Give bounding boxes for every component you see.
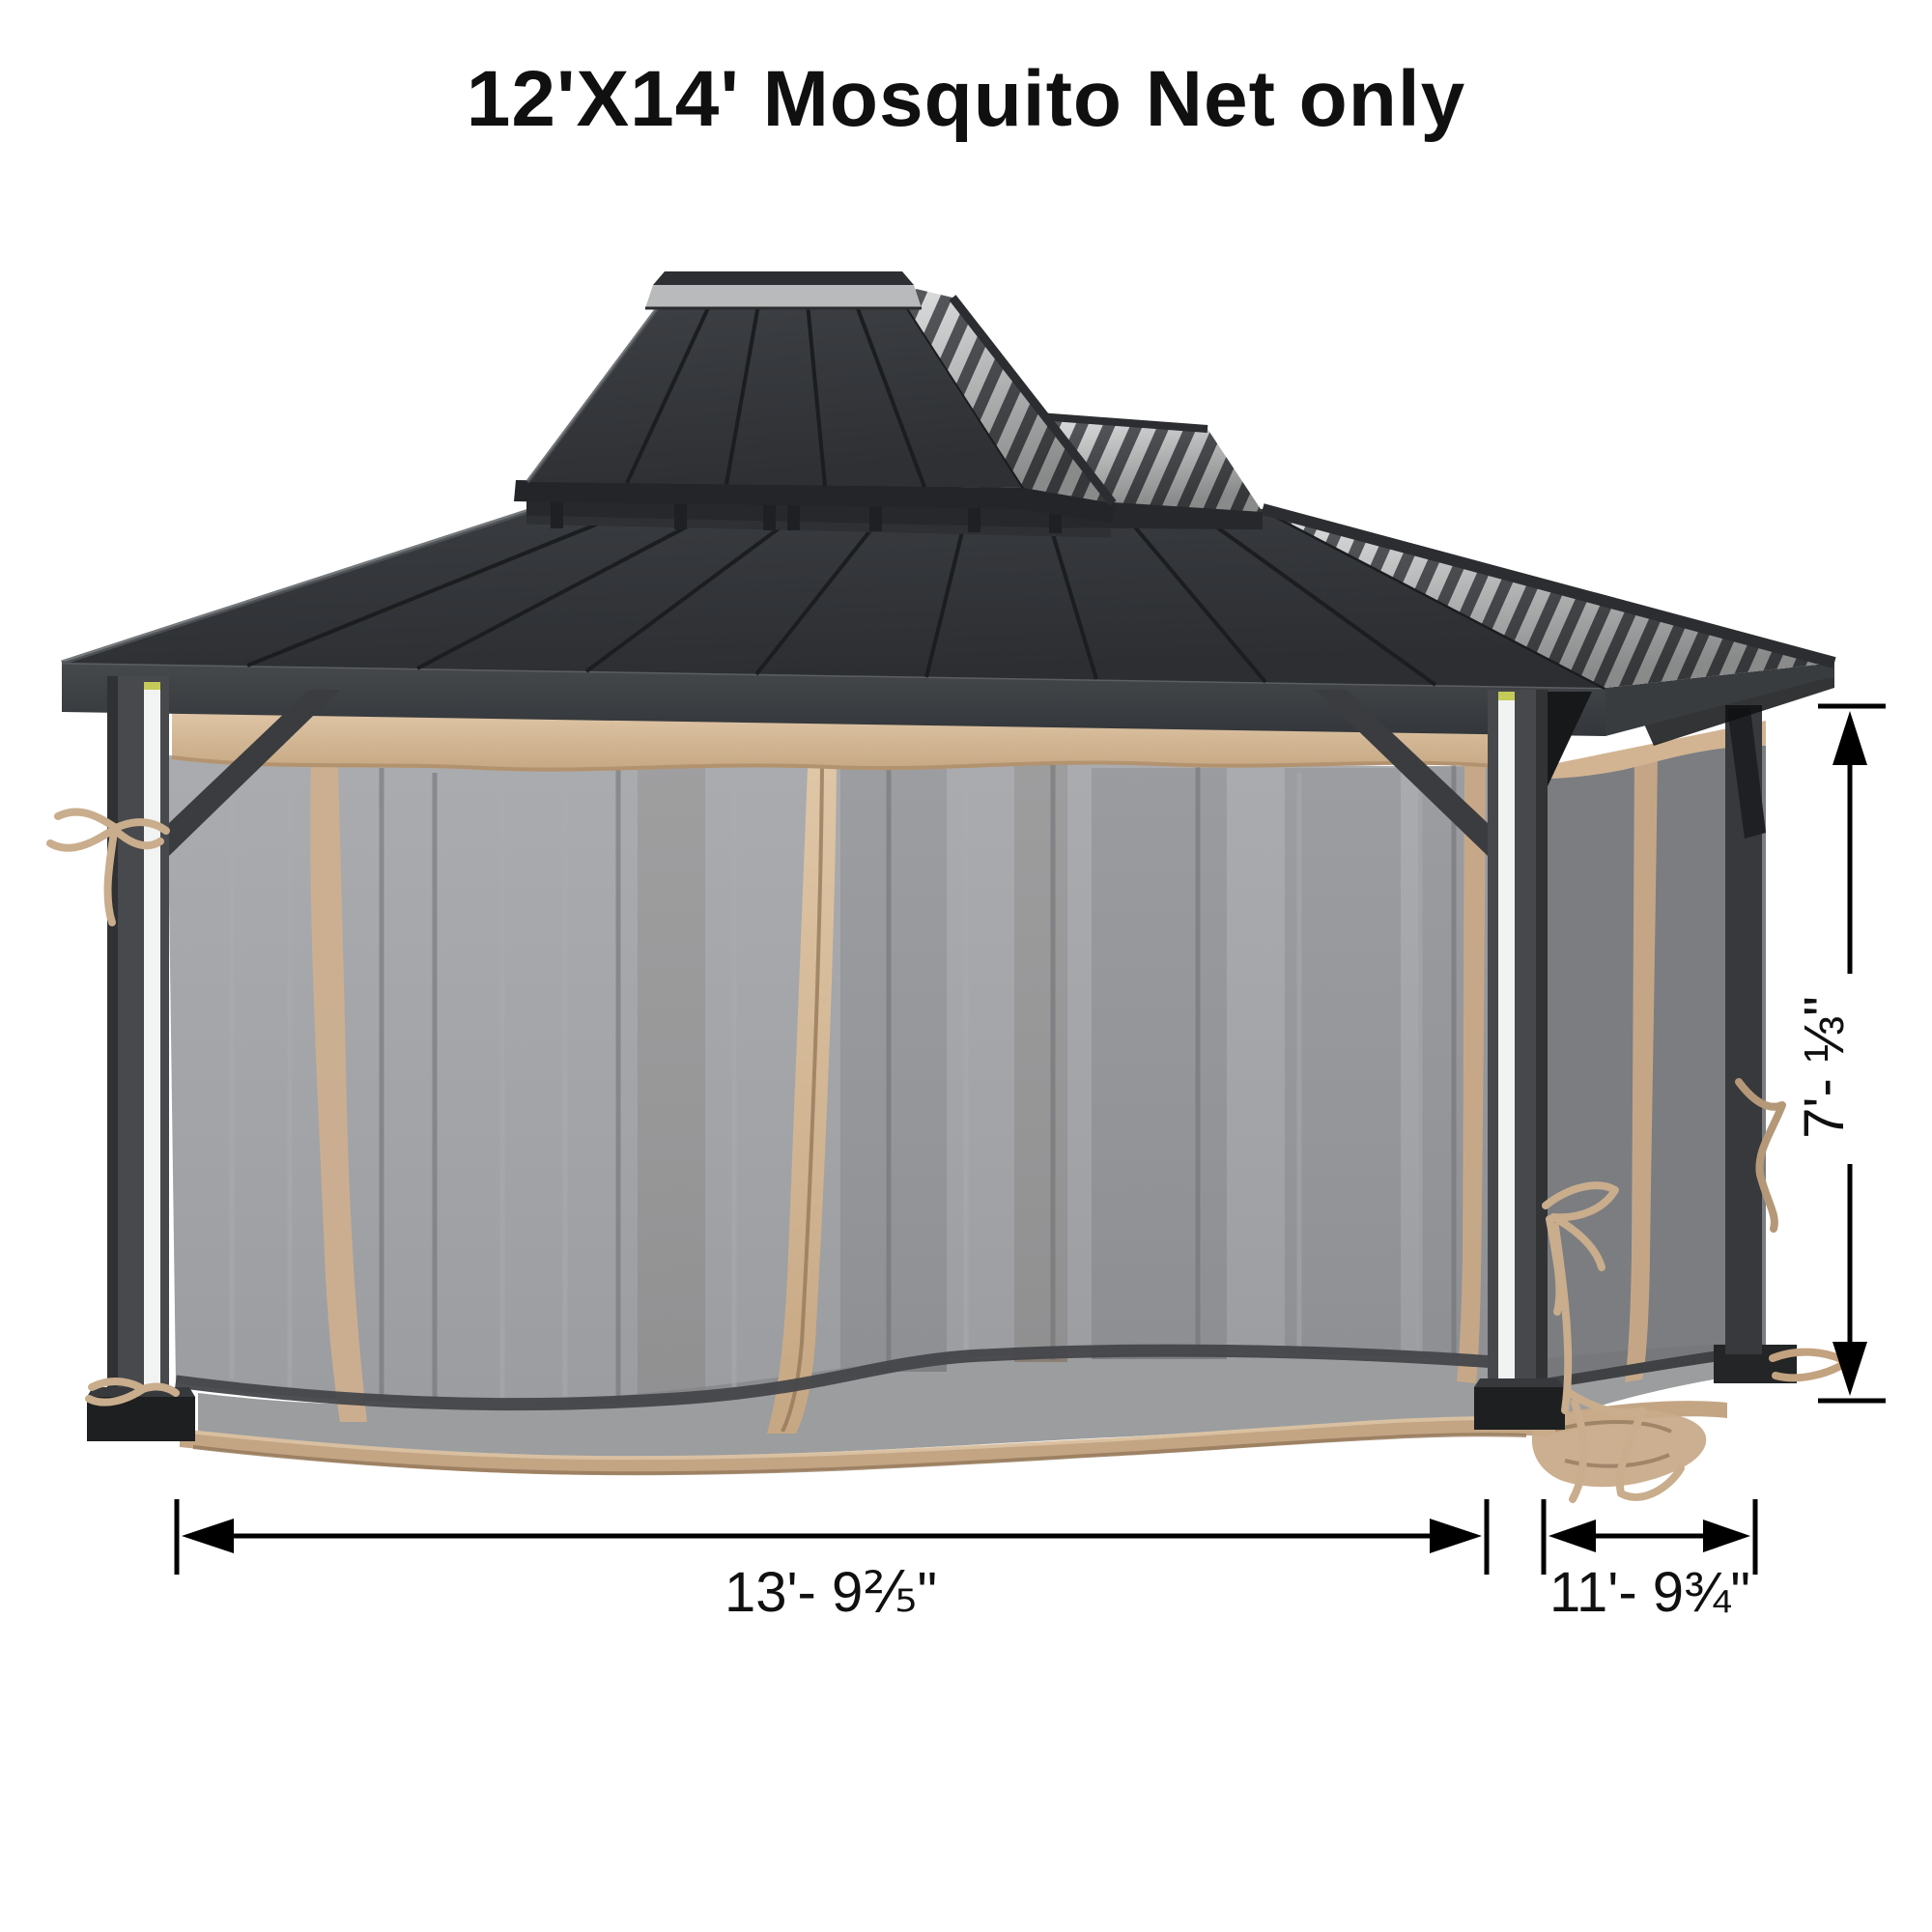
- front-right-post-base: [1474, 1387, 1565, 1430]
- mosquito-net-front-panel: [167, 755, 1495, 1434]
- dimension-front-width-label: 13'- 9⅖": [724, 1561, 937, 1624]
- upper-roof: [514, 271, 1117, 523]
- page-title: 12'X14' Mosquito Net only: [467, 55, 1466, 143]
- dimension-net-height-label: 7'- ⅓": [1793, 996, 1856, 1139]
- upper-roof-cap-vent-strip: [645, 285, 922, 308]
- upper-roof-cap: [653, 271, 914, 285]
- dimension-side-depth-label: 11'- 9¾": [1549, 1561, 1750, 1624]
- product-dimension-diagram: 12'X14' Mosquito Net only: [0, 0, 1932, 1932]
- back-right-post: [1714, 705, 1797, 1383]
- gazebo-illustration: 12'X14' Mosquito Net only: [0, 0, 1932, 1932]
